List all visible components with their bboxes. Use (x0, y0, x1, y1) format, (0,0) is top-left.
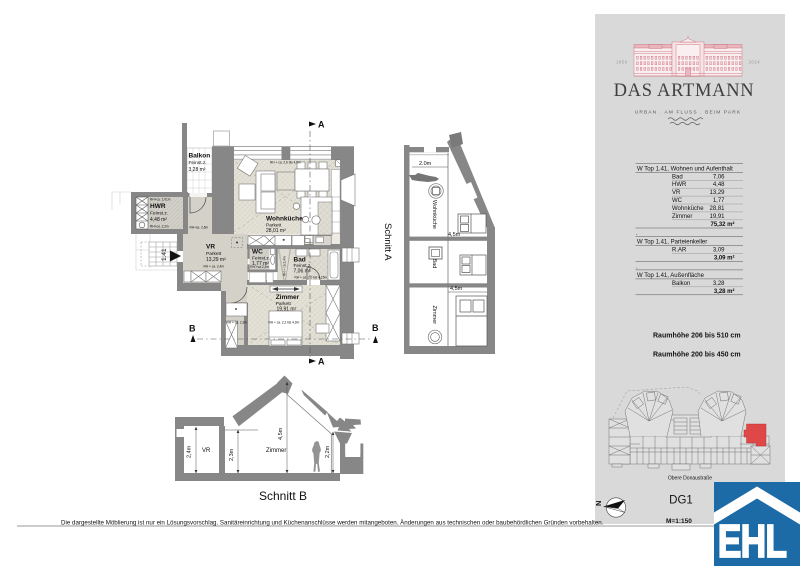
svg-text:Feinst.z.: Feinst.z. (150, 211, 168, 217)
svg-text:28,81: 28,81 (709, 206, 725, 212)
svg-text:RH + ca. 2,2 bis 4,9m: RH + ca. 2,2 bis 4,9m (269, 321, 300, 325)
svg-text:13,29: 13,29 (709, 190, 725, 196)
svg-text:Raumhöhe 200 bis 450 cm: Raumhöhe 200 bis 450 cm (653, 351, 741, 358)
svg-text:EHL: EHL (718, 516, 787, 566)
svg-text:1,77: 1,77 (713, 198, 725, 204)
svg-text:RH + ca. 2,6 bis 4,5m: RH + ca. 2,6 bis 4,5m (270, 161, 301, 165)
svg-text:Schnitt A: Schnitt A (382, 223, 393, 261)
svg-text:2,3m: 2,3m (229, 448, 235, 461)
svg-text:Balkon: Balkon (189, 153, 211, 160)
svg-text:RH + ca 2,4m: RH + ca 2,4m (283, 256, 287, 276)
svg-text:RH+ca. 2,01m: RH+ca. 2,01m (150, 198, 171, 202)
svg-text:HWR: HWR (150, 203, 166, 210)
svg-text:Bad: Bad (431, 259, 437, 269)
svg-text:3,28 m²: 3,28 m² (714, 288, 735, 295)
svg-text:VR: VR (202, 448, 211, 454)
svg-text:19,91 m²: 19,91 m² (277, 307, 297, 313)
svg-text:VR: VR (206, 244, 215, 251)
svg-text:N: N (594, 501, 603, 506)
svg-text:RH+ca. 2,6m: RH+ca. 2,6m (190, 225, 209, 229)
svg-text:RH + ca. 2,0 bis 4,15m: RH + ca. 2,0 bis 4,15m (295, 275, 328, 279)
svg-text:RH + ca. 2,4m: RH + ca. 2,4m (204, 264, 225, 268)
svg-text:Die dargestellte Möblierung is: Die dargestellte Möblierung ist nur ein … (61, 520, 604, 527)
svg-text:Obere Donaustraße: Obere Donaustraße (668, 476, 712, 482)
svg-text:WC: WC (252, 249, 263, 256)
svg-text:HWR: HWR (672, 182, 687, 188)
svg-text:4,48: 4,48 (713, 182, 725, 188)
svg-text:R.AR: R.AR (672, 247, 687, 253)
svg-text:Zimmer: Zimmer (276, 294, 300, 301)
svg-text:Wohnküche: Wohnküche (266, 215, 303, 222)
svg-text:RH + ca. 2,3m: RH + ca. 2,3m (227, 321, 248, 325)
svg-text:M=1:150: M=1:150 (666, 518, 692, 525)
svg-text:B: B (372, 323, 379, 333)
svg-text:A: A (318, 120, 325, 130)
svg-text:3,28 m²: 3,28 m² (189, 167, 206, 173)
svg-text:Schnitt B: Schnitt B (259, 489, 307, 503)
svg-text:URBAN . AM FLUSS . BEIM PARK: URBAN . AM FLUSS . BEIM PARK (635, 110, 741, 116)
svg-text:28,01 m²: 28,01 m² (266, 228, 286, 234)
svg-text:13,29 m²: 13,29 m² (206, 257, 226, 263)
svg-text:7,06 m²: 7,06 m² (294, 269, 311, 275)
svg-text:RH.+ca 2,2m: RH.+ca 2,2m (250, 265, 269, 269)
svg-text:Wohnküche: Wohnküche (431, 200, 437, 229)
svg-text:Bad: Bad (294, 256, 306, 263)
svg-text:Wohnküche: Wohnküche (672, 206, 704, 212)
svg-text:Raumhöhe 206 bis 510 cm: Raumhöhe 206 bis 510 cm (653, 333, 741, 340)
svg-text:B: B (189, 324, 196, 334)
svg-text:Zimmer: Zimmer (431, 306, 437, 325)
svg-text:WC: WC (672, 198, 683, 204)
svg-text:75,32 m²: 75,32 m² (710, 221, 734, 228)
svg-text:4,5m: 4,5m (450, 286, 463, 292)
svg-text:RH+ca. 2,2m: RH+ca. 2,2m (150, 225, 169, 229)
svg-text:7,06: 7,06 (713, 174, 725, 180)
svg-text:Balkon: Balkon (672, 281, 690, 287)
svg-text:3,09 m²: 3,09 m² (714, 254, 735, 261)
svg-text:2.0m: 2.0m (419, 161, 432, 167)
svg-text:3,28: 3,28 (713, 281, 725, 287)
svg-text:DAS ARTMANN: DAS ARTMANN (614, 81, 755, 101)
svg-text:19,91: 19,91 (709, 214, 725, 220)
svg-text:2024: 2024 (749, 60, 761, 65)
svg-text:W Top 1.41, Wohnen und Aufenth: W Top 1.41, Wohnen und Aufenthalt (637, 166, 733, 172)
svg-text:1856: 1856 (616, 60, 628, 65)
svg-text:2,2m: 2,2m (325, 445, 331, 458)
svg-text:4,48 m²: 4,48 m² (150, 217, 167, 223)
svg-text:VR: VR (672, 190, 681, 196)
svg-text:1.41: 1.41 (161, 248, 168, 261)
svg-text:Zimmer: Zimmer (266, 448, 286, 454)
svg-text:Bad: Bad (672, 174, 683, 180)
svg-text:DG1: DG1 (669, 495, 693, 507)
svg-text:W Top 1.41, Parteienkeller: W Top 1.41, Parteienkeller (637, 240, 707, 246)
svg-text:A: A (318, 357, 325, 367)
svg-text:4,5m: 4,5m (278, 427, 284, 440)
svg-text:3,09: 3,09 (713, 247, 725, 253)
svg-text:Feinst.z.: Feinst.z. (189, 160, 207, 166)
svg-text:W Top 1.41, Außenfläche: W Top 1.41, Außenfläche (637, 273, 705, 279)
svg-text:2,4m: 2,4m (187, 445, 193, 458)
svg-text:Zimmer: Zimmer (672, 214, 692, 220)
